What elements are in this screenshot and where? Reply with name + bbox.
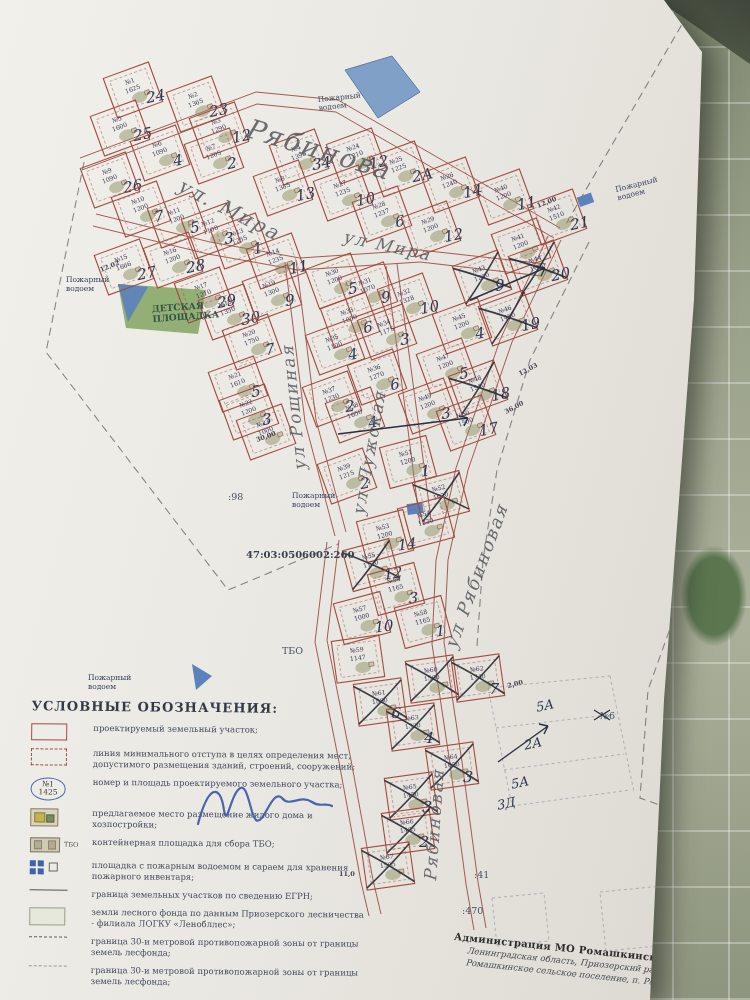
- handwritten-mark: 28: [183, 256, 207, 278]
- measure-label: 2,00: [507, 678, 525, 690]
- legend-item-text: проектируемый земельный участок;: [93, 723, 258, 736]
- street-name-handwritten: Рябиновая: [420, 767, 448, 882]
- fire-pond-marker-icon: [577, 193, 595, 208]
- map-label: Пожарныйводоем: [88, 673, 131, 691]
- map-label-line: :98: [228, 491, 243, 502]
- plot: №5112001: [379, 436, 437, 490]
- handwritten-mark: 2: [224, 154, 239, 174]
- plot: №1162524: [103, 60, 168, 120]
- legend-item: земли лесного фонда по данным Приозерско…: [29, 906, 365, 932]
- handwritten-mark: 7: [262, 339, 277, 359]
- paper-shadow-wrap: №1162524№2136523№3129012№4139034№5160025…: [0, 0, 750, 1000]
- legend-item: проектируемый земельный участок;: [31, 722, 367, 744]
- map-label: :98: [228, 491, 243, 502]
- handwritten-mark: 10: [372, 616, 395, 636]
- crossed-out-mark: [362, 844, 415, 888]
- map-label: Пожарныйводоем: [66, 275, 109, 293]
- measure-label: 12,03: [517, 361, 539, 378]
- photo-background: №1162524№2136523№3129012№4139034№5160025…: [0, 0, 750, 1000]
- plot: №3012005: [305, 253, 365, 311]
- legend-item-text: граница 30-и метровой противопожарной зо…: [91, 936, 365, 961]
- map-label-line: 47:03:0506002:260: [246, 549, 355, 560]
- legend-item-text: граница земельных участков по сведению Е…: [91, 889, 313, 902]
- street-name-handwritten: ул Рощиная: [277, 343, 310, 473]
- fire-pond-marker-icon: [192, 664, 212, 690]
- legend-item-text: граница 30-и метровой противопожарной зо…: [91, 965, 365, 990]
- handwritten-mark: 13: [293, 184, 317, 206]
- paper-sheet: №1162524№2136523№3129012№4139034№5160025…: [0, 0, 750, 1000]
- legend-symbol-plot-icon: [31, 722, 93, 741]
- handwritten-mark: 11: [286, 257, 308, 279]
- crossed-out-mark: [406, 657, 459, 701]
- map-label-line: водоем: [292, 500, 320, 509]
- plot: №601560: [405, 655, 458, 703]
- legend-item-text: площадка с пожарным водоемом и сараем дл…: [92, 860, 366, 885]
- pond-area: [345, 56, 420, 118]
- legend-item: площадка с пожарным водоемом и сараем дл…: [30, 859, 366, 885]
- shed-marker-icon: [437, 524, 443, 529]
- signature-stroke: [198, 788, 332, 824]
- legend-symbol-zone30-icon: [29, 935, 91, 938]
- plot-area: 1147: [350, 653, 367, 662]
- boundary-dashed-line: [640, 545, 724, 828]
- map-label-line: :470: [462, 905, 483, 916]
- handwritten-mark: 3: [397, 330, 412, 350]
- plot: №6217407: [451, 654, 505, 704]
- legend-item: граница 30-и метровой противопожарной зо…: [29, 935, 365, 961]
- legend-symbol-zone30b-icon: [29, 964, 91, 967]
- neighbour-parcel-line: [504, 754, 624, 770]
- plot: №46145019: [478, 288, 544, 349]
- handwritten-mark: 2А: [409, 164, 434, 186]
- map-label-line: водоем: [66, 284, 94, 293]
- map-label: 47:03:0506002:260: [246, 549, 355, 560]
- handwritten-mark: 10: [417, 297, 441, 319]
- plot: №4512004: [432, 298, 492, 355]
- measure-label: 12,02: [99, 259, 121, 274]
- map-label-line: водоем: [318, 101, 347, 113]
- neighbour-parcel-line: [600, 885, 678, 951]
- neighbour-parcel-label: 5А: [534, 696, 555, 714]
- handwritten-mark: 14: [395, 534, 417, 554]
- neighbour-parcel-line: [488, 688, 512, 806]
- handwritten-mark: 1: [418, 462, 430, 481]
- legend-item-text: земли лесного фонда по данным Приозерско…: [91, 907, 365, 932]
- pen-signature: [190, 768, 340, 848]
- neighbour-parcel-line: [496, 714, 616, 728]
- legend-symbol-house-icon: [30, 807, 92, 827]
- map-label-line: :41: [474, 869, 489, 880]
- handwritten-mark: 12: [441, 225, 465, 247]
- legend-title: УСЛОВНЫЕ ОБОЗНАЧЕНИЯ:: [31, 698, 367, 717]
- street-name-handwritten: Рябинова: [241, 112, 394, 186]
- legend-symbol-egrn-icon: [30, 888, 92, 891]
- neighbour-parcel-label: 2А: [522, 734, 543, 752]
- tbo-caption: ТБО: [64, 841, 79, 849]
- map-label: Пожарныйводоем: [614, 175, 660, 202]
- legend-item: граница 30-и метровой противопожарной зо…: [29, 964, 365, 990]
- map-label-line: водоем: [88, 682, 116, 691]
- handwritten-mark: 24: [143, 86, 166, 108]
- map-label: :41: [474, 869, 489, 880]
- shed-marker-icon: [369, 662, 375, 667]
- neighbour-parcel-line: [512, 790, 630, 806]
- neighbour-parcel-label: 5А: [509, 773, 530, 791]
- handwritten-mark: 21: [567, 213, 589, 235]
- map-label: Пожарныйводоем: [317, 91, 362, 113]
- plot: №591147: [331, 635, 384, 683]
- legend-symbol-forest-icon: [29, 906, 91, 926]
- legend-symbol-tbo-icon: ТБО: [30, 836, 92, 853]
- legend-item: граница земельных участков по сведению Е…: [29, 888, 365, 903]
- map-label: :470: [462, 905, 483, 916]
- neighbour-parcel-line: [610, 676, 634, 792]
- shed-marker-icon: [277, 432, 283, 437]
- plot-number-sample: №11425: [30, 777, 65, 800]
- handwritten-mark: 17: [476, 418, 501, 440]
- legend-symbol-fire-icon: [30, 859, 92, 875]
- handwritten-mark: 4: [170, 151, 184, 171]
- legend-rows: проектируемый земельный участок;линия ми…: [29, 722, 368, 990]
- handwritten-mark: 6: [392, 212, 407, 232]
- handwritten-mark: 9: [282, 291, 297, 311]
- map-label-line: ТБО: [282, 645, 303, 656]
- boundary-dashed-line: [477, 242, 589, 646]
- plot: №671505: [361, 842, 414, 890]
- plot: №57100010: [333, 590, 397, 647]
- legend-symbol-setback-icon: [31, 747, 93, 766]
- handwritten-mark: 1: [250, 239, 263, 259]
- street-name-handwritten: ул Мира: [340, 226, 433, 264]
- map-label: Пожарныйводоем: [292, 491, 335, 509]
- neighbour-parcel-label: 3Д: [495, 794, 519, 813]
- plot: №40120011: [474, 168, 539, 228]
- handwritten-mark: 4: [472, 324, 486, 344]
- legend-symbol-number-icon: №11425: [30, 776, 92, 800]
- plot: №4312009: [452, 250, 512, 308]
- map-label: ТБО: [282, 645, 303, 656]
